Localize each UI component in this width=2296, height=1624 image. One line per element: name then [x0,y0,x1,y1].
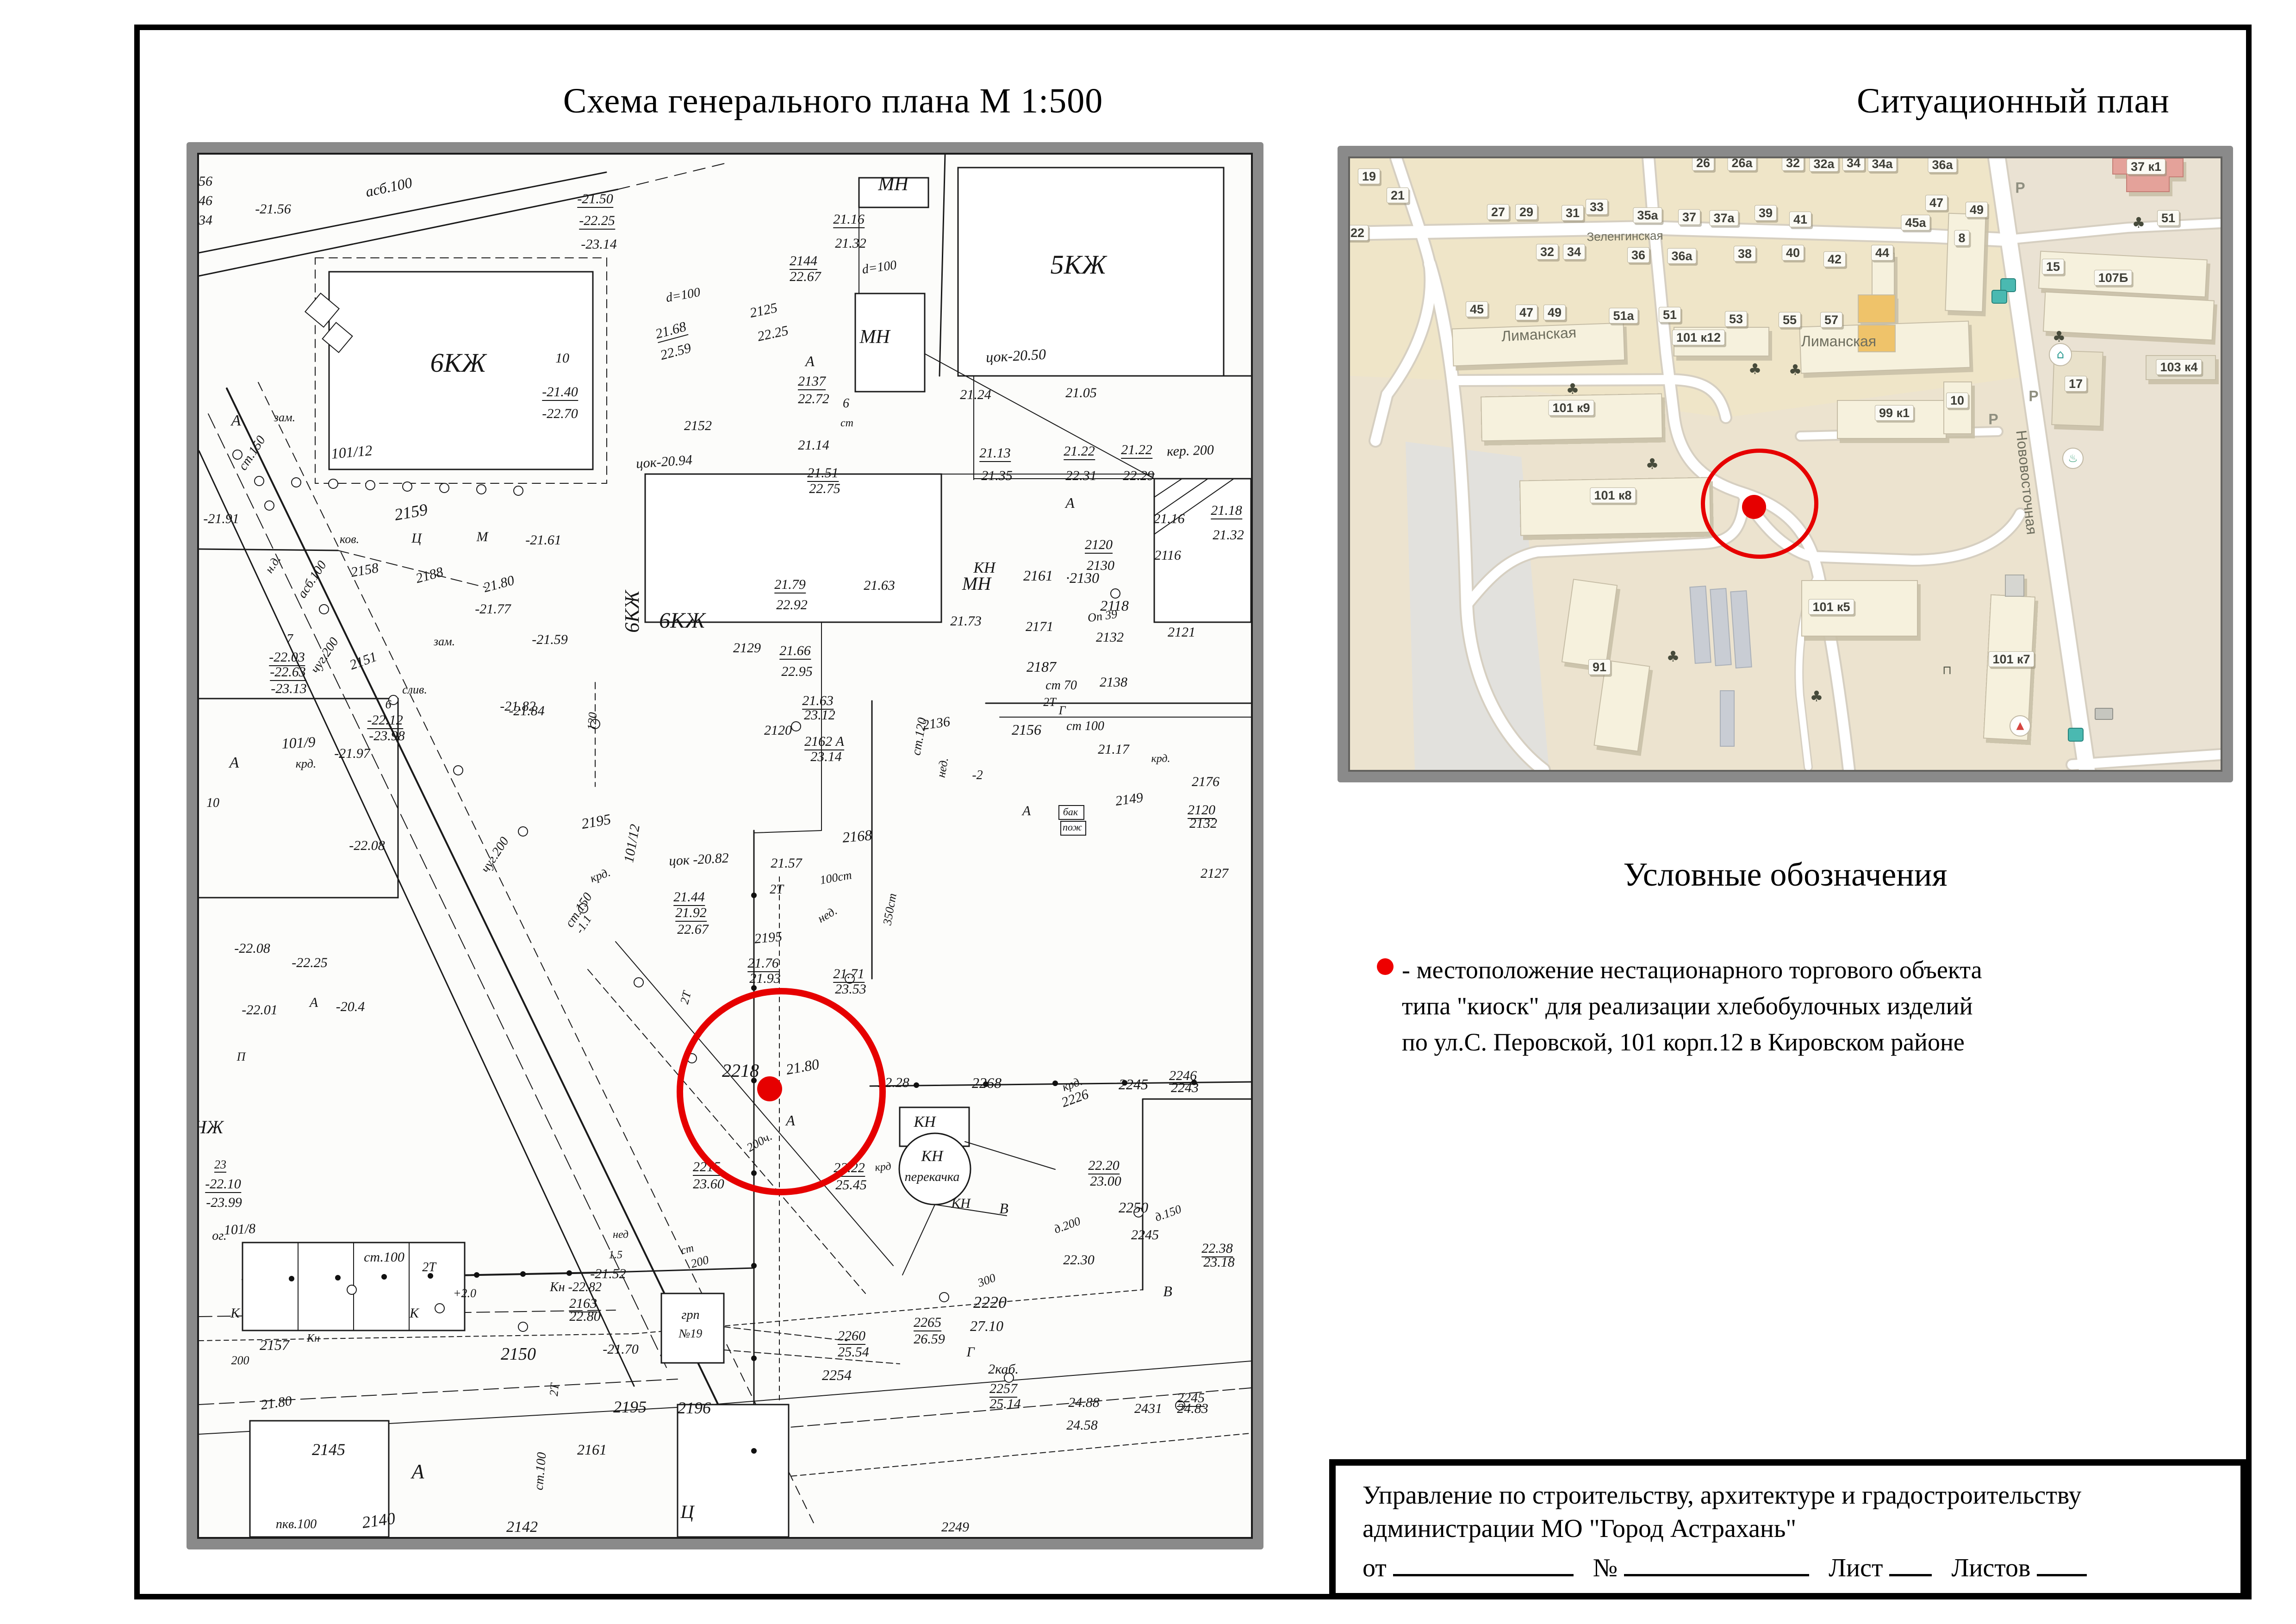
genplan-label: -21.40 [542,385,578,401]
genplan-label: П [237,1051,246,1063]
genplan-label: 22.30 [1063,1253,1095,1267]
genplan-label: МН [962,575,991,593]
genplan-label: 2120 [1085,538,1113,554]
genplan-label: К [410,1306,419,1320]
tree-icon: ♣ [1748,362,1762,376]
genplan-label: 2157 [260,1337,289,1352]
genplan-label: 22.67 [790,270,821,284]
genplan-label: 2168 [842,827,873,844]
genplan-label: 2129 [733,641,761,655]
genplan-label: 2151 [348,650,379,673]
genplan-label: 2249 [941,1520,969,1534]
genplan-label: 2195 [613,1399,647,1415]
genplan-label: крд [874,1161,891,1174]
genplan-title: Схема генерального плана М 1:500 [324,81,1342,121]
genplan-label: чуг.200 [479,835,511,875]
genplan-label: 21.71 [833,967,865,983]
genplan-label: КН [914,1114,935,1130]
genplan-label: -23.14 [581,237,617,251]
genplan-label: 22.72 [798,392,829,406]
genplan-label: 21.22 [1064,444,1095,460]
genplan-label: М [477,530,488,544]
genplan-label: 2Т [770,883,784,896]
genplan-label: 21.22 [1121,443,1152,459]
genplan-label: 25.45 [835,1178,867,1192]
genplan-label: 2120 [764,724,792,737]
genplan-label: 25.14 [989,1397,1021,1411]
genplan-label: 21.35 [981,469,1013,483]
legend-line: - местоположение нестационарного торгово… [1402,952,1982,988]
genplan-label: 2каб. [988,1362,1019,1376]
genplan-label: 2121 [1168,625,1195,639]
genplan-label: нед. [816,905,840,925]
genplan-label: В [1163,1284,1172,1299]
genplan-label: 22.92 [776,598,808,612]
p-icon: Р [2015,180,2025,197]
genplan-label: 2142 [506,1519,538,1535]
bench-icon: ⊓ [1942,664,1952,676]
genplan-label: 21.79 [774,578,806,593]
genplan-label: 101/9 [281,734,316,751]
genplan-label: 22.67 [677,923,709,937]
genplan-label: асб.100 [364,175,413,199]
genplan-label: 2245 [1119,1077,1148,1092]
genplan-label: 2260 [838,1329,865,1345]
genplan-label: 21.17 [1098,743,1129,756]
genplan-label: 22.95 [781,665,813,679]
genplan-label: -20.4 [336,1000,365,1014]
genplan-label: 2176 [1192,775,1220,789]
genplan-label: 21.73 [950,614,982,628]
genplan-label: 21.44 [673,890,705,906]
genplan-label: 2195 [754,930,783,946]
genplan-label: 21.57 [771,856,802,870]
genplan-label: -22.01 [242,1003,278,1017]
genplan-label: 200 [231,1355,249,1367]
genplan-label: 2188 [414,565,445,586]
document-page: Схема генерального плана М 1:500 Ситуаци… [0,0,2296,1624]
genplan-label: -22.70 [542,407,578,421]
genplan-label: крд. [296,758,316,770]
genplan-label: -22.08 [349,839,385,853]
legend-heading: Условные обозначения [1338,856,2233,894]
legend-line: по ул.С. Перовской, 101 корп.12 в Кировс… [1402,1024,1982,1060]
genplan-label: -21.50 [577,192,613,208]
genplan-label: КН [973,560,995,576]
genplan-label: 2171 [1026,620,1053,634]
title-block-line2: администрации МО "Город Астрахань" [1363,1512,2227,1545]
genplan-label: Г [1059,705,1066,717]
genplan-label: цок -20.82 [669,851,729,868]
genplan-label: -22.63 [270,665,306,681]
genplan-label: 2145 [312,1441,345,1458]
genplan-label: чуг.200 [309,636,341,676]
tree-icon: ♣ [1810,689,1823,704]
genplan-label: 2268 [972,1075,1002,1090]
sheet-line [1889,1555,1932,1576]
genplan-label: 10 [206,797,219,810]
genplan-label: ст.100 [532,1452,548,1491]
genplan-label: зам. [434,636,455,648]
genplan-label: пкв.100 [276,1518,317,1531]
genplan-label: 21.13 [979,446,1011,462]
genplan-label: 23.60 [693,1177,724,1191]
genplan-label: Ц [411,531,422,545]
genplan-label: цок-20.50 [985,347,1046,365]
genplan-label: ·2130 [1066,570,1099,585]
genplan-label: -21.56 [255,202,291,216]
sitplan-icons: ♣♣♣♣♣♣♣♣⊓РРР⌂♨▲ [1350,158,2221,770]
genplan-label: ст [679,1243,695,1256]
genplan-label: -21.97 [334,747,370,761]
genplan-label: -22.12 [367,713,403,729]
genplan-label: -22.25 [579,214,615,230]
genplan-label: -21.91 [203,512,239,526]
genplan-label: 21.16 [1153,512,1185,526]
genplan-label: 2195 [580,812,612,831]
genplan-label: 2132 [1189,817,1217,831]
tree-icon: ♣ [1646,456,1659,471]
genplan-label: д.150 [1153,1203,1183,1224]
genplan-label: 6 [843,397,849,410]
genplan-label: -22.08 [234,942,270,956]
genplan-label: 2220 [973,1294,1007,1311]
tree-icon: ♣ [1566,381,1580,396]
genplan-label: 56 [199,175,212,188]
genplan-label: 2243 [1171,1081,1199,1095]
genplan-map-area: 564634-21.56асб.1006КЖ10-21.40-22.70-21.… [197,153,1253,1539]
legend-text: - местоположение нестационарного торгово… [1402,952,1982,1060]
genplan-label: асб.100 [296,559,329,600]
genplan-label: 24.83 [1177,1402,1208,1416]
genplan-label: 21.80 [482,574,516,595]
tree-icon: ♣ [1667,649,1680,664]
genplan-label: 2158 [350,561,380,580]
genplan-label: 101/8 [224,1222,256,1237]
genplan-label: -21.70 [603,1343,639,1356]
genplan-label: КН [951,1197,971,1211]
genplan-label: 21.32 [1213,528,1244,542]
genplan-label: 120 [585,712,599,731]
genplan-label: 25.54 [838,1345,869,1359]
genplan-label: +2.0 [453,1287,476,1299]
genplan-label: -21.82 [500,700,536,713]
genplan-label: 2116 [1154,549,1181,562]
shop-icon: ▲ [2010,715,2031,737]
genplan-label: 22.25 [756,324,790,344]
genplan-label: 2257 [989,1382,1017,1398]
genplan-label: кер. 200 [1167,443,1214,459]
genplan-label: -23.98 [369,729,405,743]
tree-icon: ♣ [2053,329,2066,344]
genplan-label: цок-20.94 [635,453,693,471]
genplan-label: 21.76 [747,956,779,972]
genplan-label: НЖ [197,1118,224,1137]
genplan-label: -23.99 [206,1196,242,1210]
genplan-label: 2187 [1027,659,1056,674]
genplan-label: 2Т [548,1383,561,1397]
genplan-label: 350ст [881,893,899,926]
genplan-label: 21.93 [749,972,781,986]
genplan-label: 46 [199,194,212,208]
genplan-label: 2159 [393,501,429,523]
genplan-label: ст [840,418,853,429]
genplan-label: 2161 [577,1442,607,1457]
genplan-label: бак [1063,807,1078,817]
tree-icon: ♣ [2132,215,2146,230]
genplan-label: КН [921,1149,943,1164]
sitplan-map-area: 1921222729313335а3737а394132343636а38404… [1348,156,2222,772]
genplan-label: А [1022,804,1031,818]
genplan-label: 2Т [422,1261,436,1274]
genplan-label: 101/12 [330,443,373,461]
genplan-label: 21.66 [779,644,811,660]
genplan-label: 101/12 [622,823,642,863]
legend-item: - местоположение нестационарного торгово… [1377,952,2127,1060]
genplan-label: ст 100 [1066,720,1104,733]
genplan-label: 6КЖ [659,610,705,632]
genplan-label: А [412,1462,424,1482]
genplan-label: -23.13 [271,682,307,696]
genplan-label: -22.03 [269,650,305,666]
genplan-label: 2132 [1096,631,1124,644]
genplan-label: 2254 [822,1368,852,1382]
genplan-label: 2Т [678,990,693,1005]
genplan-label: В [999,1201,1008,1216]
genplan-label: -2 [972,769,983,782]
genplan-label: -22.10 [205,1177,241,1193]
genplan-label: 10 [555,351,569,365]
genplan-label: 34 [199,213,212,227]
genplan-label: нед. [935,756,950,778]
genplan-label: н.д. [263,554,283,575]
genplan-label: 2125 [749,301,779,320]
p-icon: Р [1988,411,1998,428]
genplan-label: 23.00 [1090,1174,1121,1188]
genplan-label: 2196 [678,1399,711,1416]
genplan-label: 21.51 [807,466,839,482]
genplan-label: 21.16 [833,212,865,228]
genplan-label: 24.58 [1066,1418,1098,1432]
genplan-label: 2140 [361,1510,396,1531]
genplan-label: 2144 [790,254,817,270]
genplan-label: 21.80 [260,1394,292,1412]
genplan-label: грп [682,1309,700,1322]
number-label: № [1593,1553,1618,1583]
sheet-label: Лист [1829,1553,1883,1583]
hotel-icon: ⌂ [2049,343,2072,366]
genplan-label: 21.05 [1065,386,1097,400]
genplan-map: 564634-21.56асб.1006КЖ10-21.40-22.70-21.… [187,142,1263,1549]
genplan-label: -21.52 [590,1267,626,1281]
genplan-label: 22.80 [569,1310,601,1324]
genplan-label: d=100 [861,259,897,276]
genplan-label: 21.68 [654,320,688,343]
truck-icon [2095,708,2113,720]
genplan-label: 22.29 [1123,469,1154,483]
from-label: от [1363,1553,1387,1583]
sitplan-map: 1921222729313335а3737а394132343636а38404… [1338,146,2233,782]
genplan-label: 2127 [1201,867,1228,881]
genplan-label: 2162 А [804,735,844,750]
genplan-label: ст.150 [236,434,268,473]
genplan-label: 7 [286,633,293,646]
genplan-label: 23 [214,1159,226,1173]
genplan-label: А [1065,495,1075,510]
genplan-label: 200 [690,1254,710,1270]
genplan-label: 2245 [1131,1228,1159,1242]
genplan-label: ков. [340,533,359,545]
legend-line: типа "киоск" для реализации хлебобулочны… [1402,988,1982,1024]
genplan-label: 2138 [1100,675,1127,689]
genplan-label: 6КЖ [622,590,642,633]
genplan-label: 6 [386,699,392,711]
kiosk-marker-icon [1377,958,1394,975]
genplan-label: 22.75 [809,482,840,496]
genplan-label: слив. [402,684,427,696]
genplan-label: крд. [589,866,612,885]
number-line [1624,1555,1809,1576]
tree-icon: ♣ [1789,362,1802,377]
genplan-label: ст 70 [1045,679,1077,692]
genplan-label: -21.77 [475,602,511,616]
genplan-label: 2149 [1114,791,1144,808]
genplan-label: А [310,996,318,1010]
genplan-label: зам. [274,412,295,424]
genplan-label: 2Т [1043,696,1056,708]
bell-icon: ♨ [2062,448,2084,469]
genplan-label: К [230,1306,240,1320]
genplan-label: 6КЖ [430,350,486,376]
genplan-label: 21.14 [798,438,829,452]
genplan-label: 22.20 [1088,1159,1120,1174]
genplan-label: №19 [679,1328,703,1340]
sitplan-title: Ситуационный план [1736,81,2291,121]
genplan-label: 2152 [684,419,712,433]
genplan-label: 22.59 [659,341,693,362]
genplan-label: 21.92 [675,906,707,922]
genplan-label: 21.32 [835,237,866,250]
genplan-label: 23.14 [810,750,842,764]
genplan-label: МН [859,327,890,347]
genplan-label: -22.25 [292,956,328,970]
genplan-label: 1.5 [609,1249,622,1261]
genplan-label: МН [878,175,908,194]
sheets-line [2037,1555,2087,1576]
p-icon: Р [2028,388,2038,405]
genplan-label: 2118 [1100,598,1129,613]
title-block: Управление по строительству, архитектуре… [1329,1459,2247,1599]
genplan-label: 2137 [798,375,826,390]
genplan-label: перекачка [905,1171,960,1184]
genplan-label: 23.18 [1203,1255,1235,1269]
genplan-label: 24.88 [1068,1396,1100,1410]
genplan-label: крд. [1151,753,1170,764]
genplan-label: А [231,413,241,429]
genplan-label: ст.100 [364,1250,404,1264]
genplan-label: 2150 [501,1345,536,1363]
title-block-line1: Управление по строительству, архитектуре… [1363,1479,2227,1512]
genplan-label: 27.10 [970,1318,1003,1333]
sheets-label: Листов [1951,1553,2030,1583]
genplan-label: Кн [307,1333,320,1344]
genplan-label: -21.59 [532,633,568,647]
genplan-label: А [230,755,239,771]
genplan-label: d=100 [665,286,702,305]
genplan-label: Г [966,1345,974,1359]
genplan-label: 2161 [1023,568,1053,583]
bus-icon [2068,728,2084,742]
kiosk-location-dot [757,1076,782,1101]
genplan-label: 300 [976,1272,997,1289]
genplan-label: Кн -22.82 [550,1281,602,1294]
genplan-label: А [805,354,815,369]
genplan-label: 2250 [1119,1200,1148,1215]
genplan-label: пож [1063,822,1082,832]
genplan-labels: 564634-21.56асб.1006КЖ10-21.40-22.70-21.… [199,155,1251,1537]
genplan-label: д.200 [1052,1215,1082,1236]
genplan-label: 2431 [1134,1402,1162,1416]
genplan-label: 21.63 [864,579,895,593]
genplan-label: Ц [681,1503,694,1521]
bus-icon [1991,290,2007,304]
genplan-label: 100ст [819,869,853,887]
genplan-label: нед [613,1229,628,1240]
genplan-label: 2265 [914,1316,941,1331]
genplan-label: 22.31 [1065,469,1097,483]
from-line [1393,1555,1574,1576]
genplan-label: 21.24 [960,388,991,402]
genplan-label: 21.18 [1211,504,1242,519]
genplan-label: 23.53 [835,982,866,996]
genplan-label: 23.12 [804,708,835,722]
genplan-label: 26.59 [914,1332,945,1346]
genplan-label: -21.61 [525,533,561,547]
title-block-form: от № Лист Листов [1363,1553,2227,1583]
genplan-label: 5КЖ [1051,251,1107,278]
title-block-text: Управление по строительству, архитектуре… [1363,1479,2227,1545]
genplan-label: 2156 [1012,722,1041,737]
genplan-label: ст.120 [910,717,929,756]
